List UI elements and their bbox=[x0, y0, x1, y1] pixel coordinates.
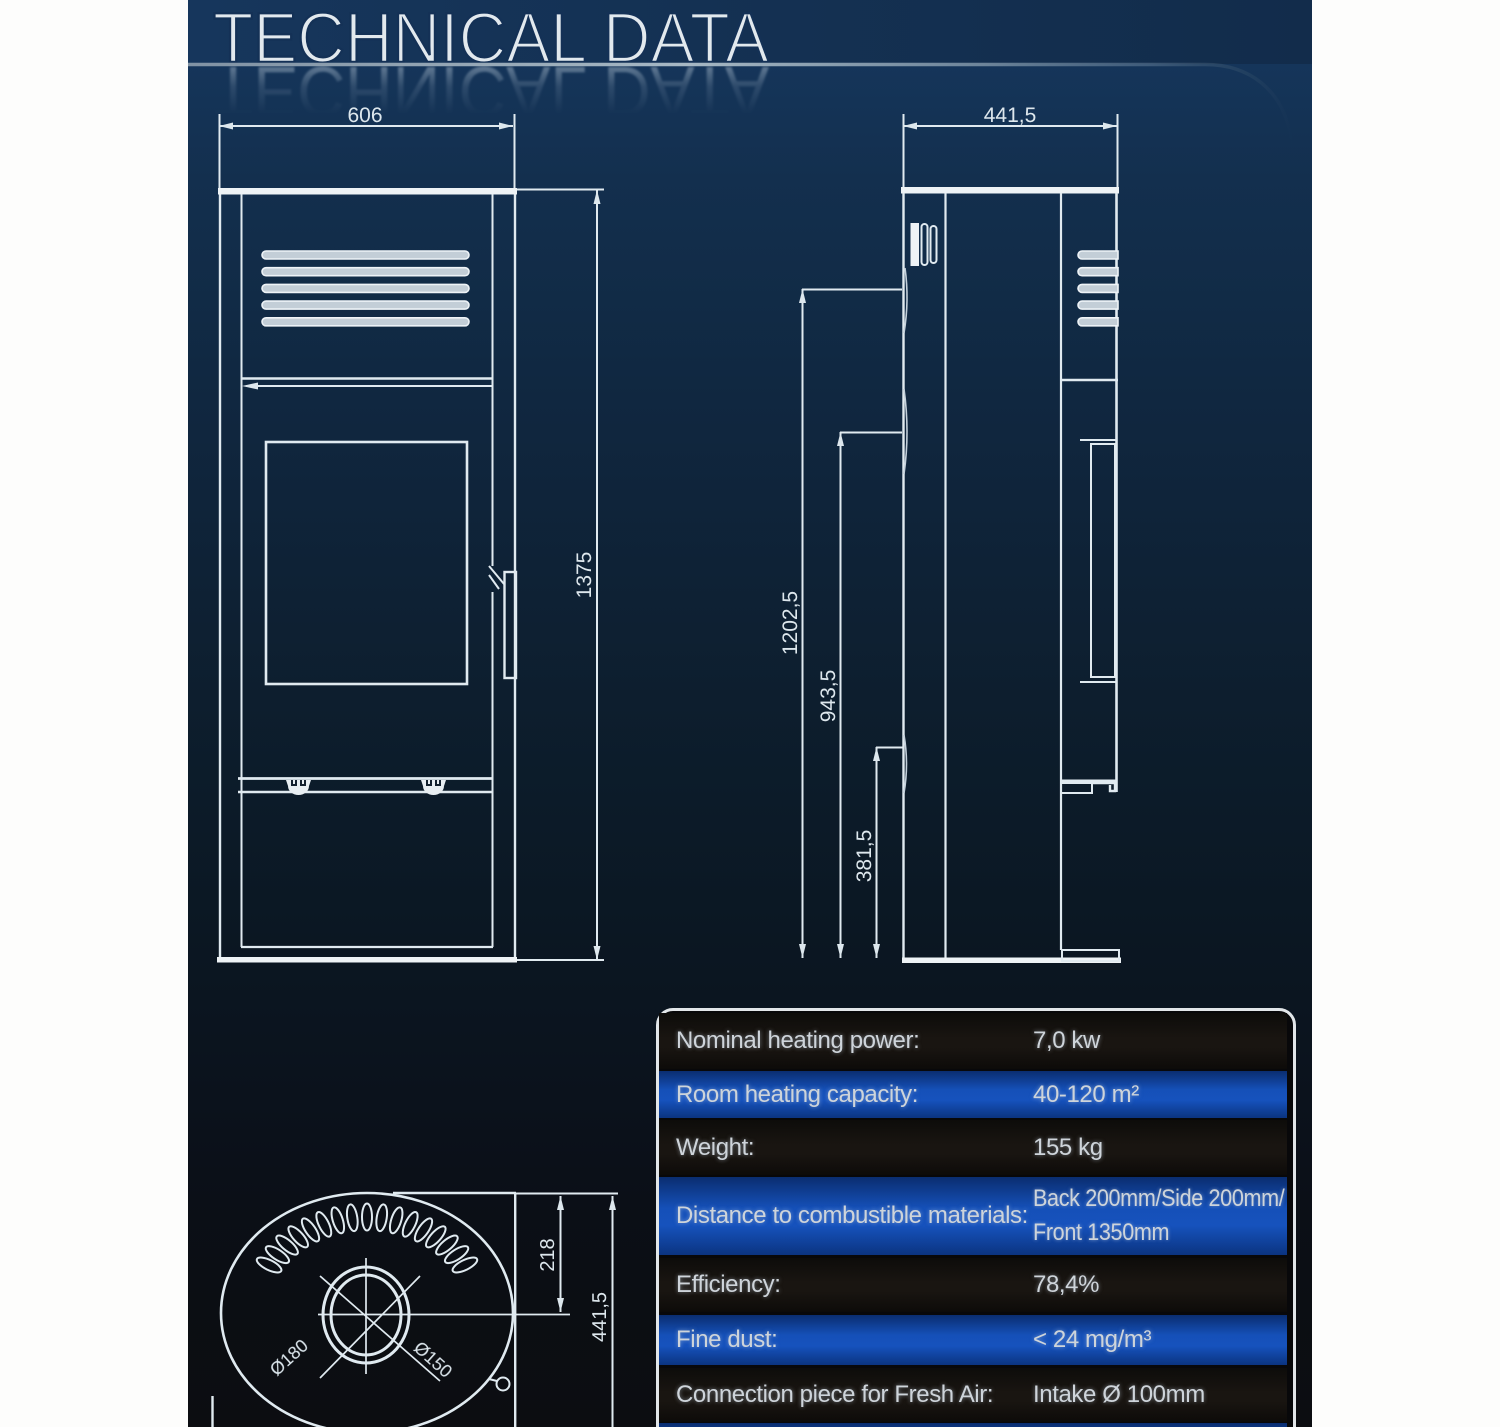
svg-text:381,5: 381,5 bbox=[853, 830, 876, 883]
svg-text:Ø180: Ø180 bbox=[266, 1335, 312, 1379]
svg-text:1375: 1375 bbox=[573, 552, 596, 599]
svg-text:606: 606 bbox=[347, 104, 382, 127]
svg-text:1202,5: 1202,5 bbox=[779, 591, 802, 655]
svg-text:218: 218 bbox=[537, 1238, 559, 1271]
svg-text:943,5: 943,5 bbox=[817, 670, 840, 723]
svg-text:441,5: 441,5 bbox=[589, 1292, 611, 1342]
svg-text:441,5: 441,5 bbox=[984, 104, 1037, 127]
